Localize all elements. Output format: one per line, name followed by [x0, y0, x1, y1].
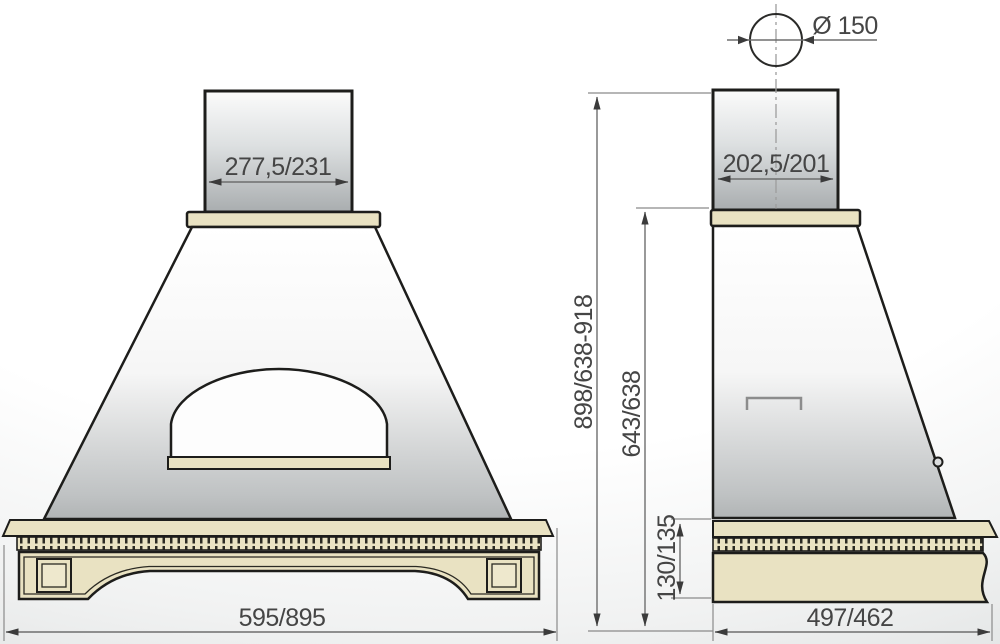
- front-rosette-right: [487, 559, 521, 592]
- side-hood-canopy: [713, 226, 955, 518]
- front-crown-molding: [3, 520, 553, 536]
- duct-diameter-label: Ø 150: [812, 12, 878, 40]
- height-dimensions: 898/638-918 643/638 130/135: [570, 93, 713, 631]
- side-mantle-shelf: [711, 210, 860, 226]
- side-apron-panel: [713, 553, 987, 602]
- front-overall-width-label: 595/895: [239, 604, 326, 632]
- front-arch-sill: [168, 457, 390, 469]
- front-apron-panel: [19, 552, 539, 599]
- drawing-svg: 277,5/231 595/895 Ø 150: [0, 0, 1000, 644]
- front-view: 277,5/231 595/895: [3, 91, 557, 641]
- side-crown-molding: [713, 521, 997, 537]
- side-overall-depth-label: 497/462: [807, 604, 894, 632]
- total-height-label: 898/638-918: [570, 295, 598, 430]
- front-duct-width-label: 277,5/231: [225, 153, 332, 181]
- side-duct-depth-label: 202,5/201: [723, 150, 830, 178]
- side-view: Ø 150 202,5/201 898/638-918 643/638: [570, 4, 997, 641]
- duct-diameter-dimension: Ø 150: [727, 12, 878, 44]
- front-dentil-molding: [17, 537, 541, 550]
- side-hinge-bump: [934, 458, 943, 467]
- base-height-label: 130/135: [653, 515, 681, 602]
- technical-drawing-range-hood: 277,5/231 595/895 Ø 150: [0, 0, 1000, 644]
- side-dentil-molding: [713, 538, 983, 551]
- front-mantle-shelf: [187, 212, 380, 227]
- hood-height-label: 643/638: [618, 371, 646, 458]
- front-chimney: [205, 91, 352, 212]
- arrow-left-inward: [738, 36, 749, 45]
- front-rosette-left: [37, 559, 71, 592]
